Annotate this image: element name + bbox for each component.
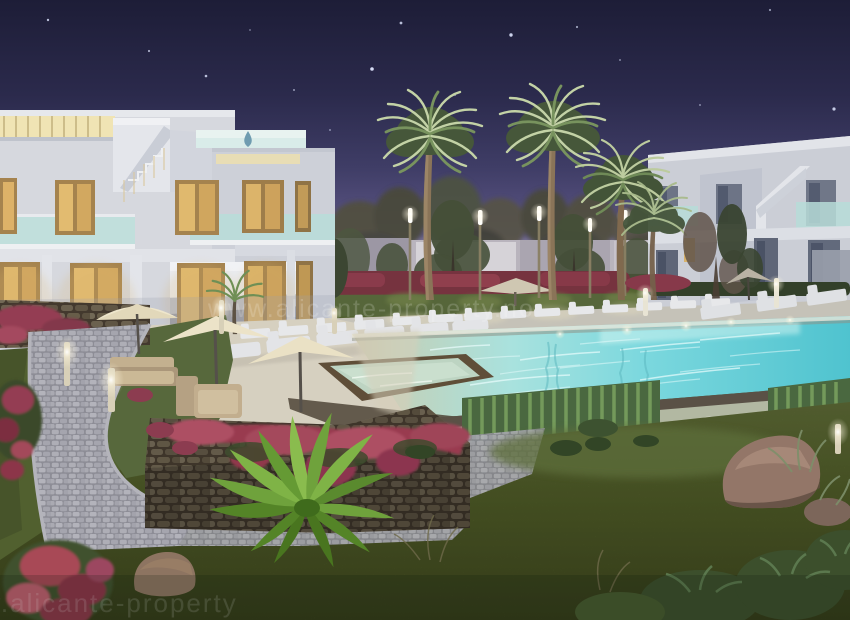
svg-text:www.alicante-property.no: www.alicante-property.no xyxy=(207,295,535,323)
